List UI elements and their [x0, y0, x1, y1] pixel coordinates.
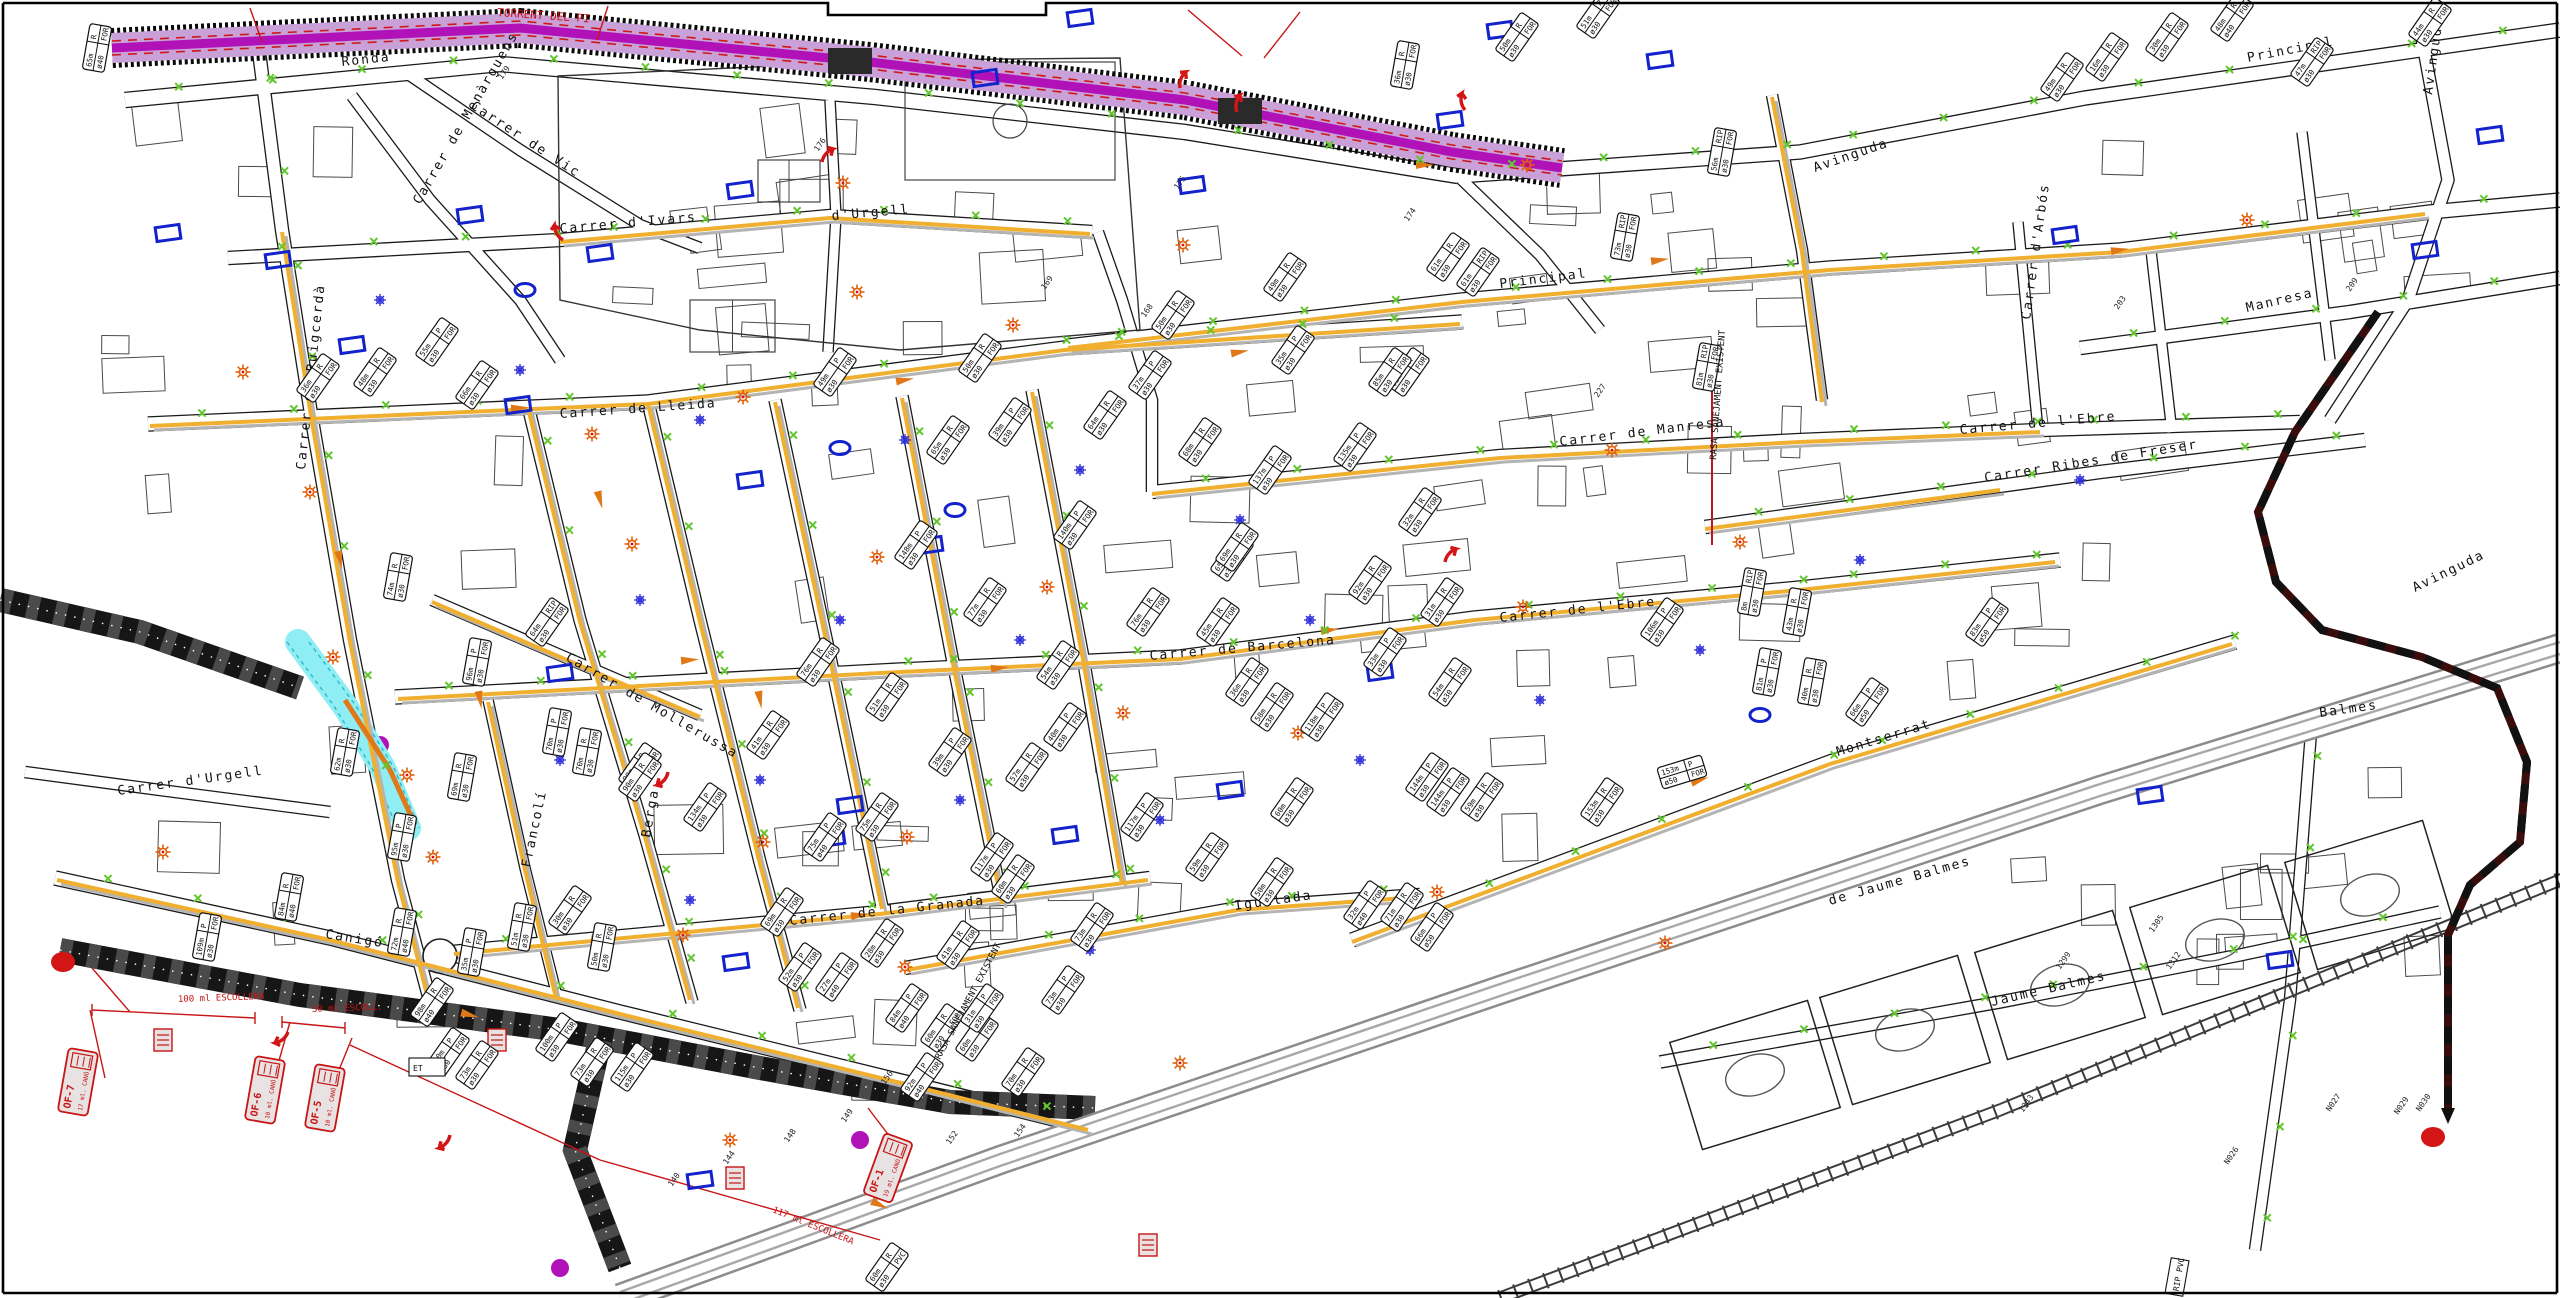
valve-ray — [1440, 887, 1442, 889]
valve-center — [856, 291, 859, 294]
valve-ray — [880, 552, 882, 554]
valve-ray — [1293, 736, 1295, 738]
pipe-segment-label: 50mRø30FOR — [587, 922, 617, 971]
point-id-label: 174 — [1402, 206, 1418, 223]
pipe-segment-label: 41mRø30FOR — [746, 710, 790, 760]
street-name-label: Francolí — [519, 789, 550, 869]
building-outline — [2222, 864, 2262, 909]
pipe-flow-arrow-icon — [1651, 255, 1670, 265]
street-surface[interactable] — [1458, 30, 2560, 176]
street-name-label: Carrer de Barcelona — [1149, 633, 1336, 664]
node-asterisk — [754, 774, 766, 786]
pipe-segment-label: 39mPø30FOR — [988, 397, 1032, 447]
point-id-label: 149 — [839, 1107, 855, 1124]
pool — [1052, 826, 1078, 843]
valve-ray — [746, 400, 748, 402]
pipe-flow-arrow-icon — [594, 490, 606, 509]
street-surface[interactable] — [2255, 720, 2312, 1250]
valve-center — [1122, 712, 1125, 715]
pipe-segment-label: 81mPø30FOR — [1752, 647, 1782, 696]
of-annotation-box: OF-610 ml. CANÓ — [245, 1056, 286, 1124]
dimension-label: 100 ml ESCOLLERA — [178, 992, 266, 1005]
gas-pipe-new — [1032, 392, 1122, 884]
park-cell — [1670, 1000, 1840, 1149]
valve-ray — [1008, 328, 1010, 330]
valve-center — [906, 836, 909, 839]
valve-ray — [852, 295, 854, 297]
valve-ray — [1042, 582, 1044, 584]
red-dot-marker — [51, 952, 75, 972]
building-outline — [1256, 552, 1299, 587]
valve-ray — [910, 832, 912, 834]
valve-ray — [305, 495, 307, 497]
valve-ray — [436, 852, 438, 854]
pipe-segment-label: 8mRIPø30FOR — [1737, 567, 1767, 616]
valve-ray — [1126, 708, 1128, 710]
valve-ray — [166, 855, 168, 857]
pipe-segment-label: 30mRø30FOR — [548, 885, 592, 935]
valve-ray — [900, 962, 902, 964]
pipe-flow-arrow-icon — [681, 655, 700, 665]
pipe-segment-label: 77mRø30FOR — [963, 577, 1007, 627]
valve-ray — [880, 560, 882, 562]
valve-icon — [736, 390, 751, 405]
pipe-segment-label: 32mRø30FOR — [1398, 487, 1442, 537]
labels-layer: RondaCarrer de PuigcerdàCarrer de Menàrg… — [58, 0, 2488, 1296]
pipeline-arrowhead — [2441, 1108, 2455, 1124]
map-sheet: RondaCarrer de PuigcerdàCarrer de Menàrg… — [0, 0, 2560, 1298]
pool — [1750, 709, 1770, 722]
junction-node-icon — [694, 414, 706, 426]
valve-ray — [1042, 590, 1044, 592]
point-id-label: 168 — [1139, 302, 1155, 319]
building-outline — [978, 496, 1015, 547]
node-asterisk — [954, 794, 966, 806]
pipe-segment-label: 66mPø50FOR — [1845, 677, 1889, 727]
valve-ray — [852, 287, 854, 289]
valve-center — [1297, 732, 1300, 735]
point-id-label: 140 — [666, 1171, 682, 1188]
valve-center — [242, 371, 245, 374]
pool — [2137, 786, 2163, 803]
special-label-text: ET — [413, 1064, 423, 1073]
point-id-label: 175 — [1172, 174, 1188, 191]
torrent-culvert — [828, 48, 872, 74]
pipe-segment-label: 40mRø30FOR — [1797, 657, 1827, 706]
junction-node-icon — [1074, 464, 1086, 476]
pool — [2477, 126, 2503, 143]
building-outline — [1583, 466, 1606, 497]
junction-node-icon — [1854, 554, 1866, 566]
works-band — [0, 600, 300, 688]
valve-ray — [860, 295, 862, 297]
valve-ray — [872, 552, 874, 554]
valve-ray — [872, 560, 874, 562]
building-outline — [1781, 406, 1802, 458]
red-flow-arrow-icon — [1455, 93, 1468, 110]
junction-node-icon — [1694, 644, 1706, 656]
dimension-line — [282, 1022, 345, 1028]
valve-ray — [328, 660, 330, 662]
pipe-segment-label: 70mRø30FOR — [572, 727, 602, 776]
pipe-segment-label: 68mRø30FOR — [1178, 417, 1222, 467]
building-outline — [1525, 383, 1593, 419]
pipe-segment-label: 118mPø30FOR — [1300, 692, 1344, 742]
utility-map-canvas: RondaCarrer de PuigcerdàCarrer de Menàrg… — [0, 0, 2560, 1298]
valve-ray — [238, 375, 240, 377]
valve-center — [1046, 586, 1049, 589]
pool — [945, 504, 965, 517]
node-asterisk — [1694, 644, 1706, 656]
valve-center — [2246, 219, 2249, 222]
node-asterisk — [634, 594, 646, 606]
valve-center — [406, 774, 409, 777]
valve-center — [762, 841, 765, 844]
valve-center — [729, 1139, 732, 1142]
valve-icon — [1176, 238, 1191, 253]
valve-ray — [1118, 716, 1120, 718]
valve-ray — [1175, 1066, 1177, 1068]
park-pond — [2335, 867, 2404, 923]
pipe-segment-label: 96mPø30FOR — [462, 637, 492, 686]
building-outline — [1247, 380, 1296, 416]
pipe-segment-label: 51mRø30FOR — [1576, 0, 1620, 39]
building-outline — [1947, 659, 1976, 699]
pipe-segment-label: 83mPø50FOR — [1965, 597, 2009, 647]
point-id-label: 227 — [1592, 382, 1608, 399]
valve-icon — [1430, 885, 1445, 900]
valve-center — [309, 491, 312, 494]
pipe-segment-label: 16mRø30FOR — [2085, 32, 2129, 82]
valve-icon — [900, 830, 915, 845]
valve-ray — [428, 860, 430, 862]
special-label: RIP PVC — [2165, 1256, 2189, 1296]
pipe-segment-label: 51mRø30FOR — [865, 672, 909, 722]
grate-icon — [1139, 1234, 1157, 1256]
valve-center — [842, 182, 845, 185]
valve-center — [631, 543, 634, 546]
valve-ray — [1126, 716, 1128, 718]
valve-center — [162, 851, 165, 854]
valve-ray — [1016, 320, 1018, 322]
pipe-segment-label: 60mRø30FOR — [1270, 777, 1314, 827]
point-id-label: 203 — [2112, 294, 2128, 311]
valve-center — [1436, 891, 1439, 894]
pipe-segment-label: 137mPø30FOR — [1248, 445, 1292, 495]
pipe-segment-label: 73mRIPø30FOR — [1610, 212, 1640, 261]
valve-ray — [1301, 736, 1303, 738]
point-id-label: 209 — [2344, 276, 2360, 293]
valve-center — [332, 656, 335, 659]
valve-icon — [756, 835, 771, 850]
valve-center — [1182, 244, 1185, 247]
pipe-flow-arrow-icon — [1230, 346, 1249, 357]
building-outline — [102, 335, 129, 353]
junction-node-icon — [374, 294, 386, 306]
valve-ray — [1735, 537, 1737, 539]
valve-icon — [723, 1133, 738, 1148]
valve-ray — [1178, 248, 1180, 250]
pool — [1067, 9, 1093, 26]
junction-node-icon — [834, 614, 846, 626]
pipe-segment-label: 57mRø30FOR — [1005, 742, 1049, 792]
building-outline — [716, 304, 770, 355]
valve-icon — [1173, 1056, 1188, 1071]
valve-ray — [246, 375, 248, 377]
point-id-label: N026 — [2222, 1145, 2241, 1166]
valve-ray — [1735, 545, 1737, 547]
of-annotation-box: OF-717 ml. CANÓ — [58, 1048, 99, 1116]
building-outline — [1403, 539, 1471, 577]
building-outline — [796, 1016, 855, 1044]
valve-ray — [246, 367, 248, 369]
valve-ray — [766, 837, 768, 839]
of-annotation-box: OF-510 ml. CANÓ — [305, 1064, 346, 1132]
pipe-segment-label: 84mRø40FOR — [274, 872, 304, 921]
building-outline — [2352, 240, 2377, 274]
pipe-segment-label: 55mPø30FOR — [415, 317, 459, 367]
valve-icon — [625, 537, 640, 552]
valve-ray — [1440, 895, 1442, 897]
street-name-label: Carrer de Vic — [468, 99, 583, 181]
building-outline — [1778, 463, 1844, 507]
valve-ray — [635, 547, 637, 549]
valve-ray — [595, 429, 597, 431]
pipe-segment-label: 45mRø30FOR — [1196, 597, 1240, 647]
valve-icon — [1040, 580, 1055, 595]
valve-icon — [236, 365, 251, 380]
works-magenta-node — [851, 1131, 869, 1149]
node-asterisk — [514, 364, 526, 376]
pipe-segment-label: 69mRø30FOR — [447, 752, 477, 801]
grate-icon — [154, 1029, 172, 1051]
pipe-segment-label: 49mRø30FOR — [1263, 252, 1307, 302]
node-asterisk — [1304, 614, 1316, 626]
valve-ray — [725, 1143, 727, 1145]
red-leader-line — [1264, 12, 1300, 58]
valve-ray — [166, 847, 168, 849]
valve-center — [682, 934, 685, 937]
valve-icon — [426, 850, 441, 865]
building-outline — [1497, 309, 1525, 327]
junction-node-icon — [1534, 694, 1546, 706]
point-id-label: 152 — [944, 1129, 960, 1146]
building-outline — [1617, 556, 1688, 589]
pipe-segment-label: 153mRø30FOR — [1580, 777, 1624, 827]
valve-ray — [910, 840, 912, 842]
point-id-label: 176 — [812, 136, 828, 153]
valve-center — [1012, 324, 1015, 327]
valve-ray — [1183, 1066, 1185, 1068]
building-outline — [102, 356, 165, 393]
valve-ray — [1050, 582, 1052, 584]
pipe-segment-label: 64mRø30FOR — [1083, 390, 1127, 440]
pool — [723, 953, 749, 970]
pipe-flow-arrow-icon — [754, 690, 765, 709]
pipe-segment-label: 65mRø40FOR — [82, 23, 112, 72]
street-surface[interactable] — [2302, 132, 2330, 360]
pool — [727, 181, 753, 198]
pool — [830, 442, 850, 455]
building-outline — [1490, 736, 1546, 767]
valve-ray — [1175, 1058, 1177, 1060]
pipe-segment-label: 92mRø30FOR — [1348, 555, 1392, 605]
valve-ray — [2242, 215, 2244, 217]
valve-ray — [2250, 223, 2252, 225]
valve-icon — [676, 928, 691, 943]
node-asterisk — [1074, 464, 1086, 476]
grate-icon — [726, 1167, 744, 1189]
valve-ray — [436, 860, 438, 862]
pipe-segment-label: 48mRø30FOR — [353, 347, 397, 397]
valve-ray — [1118, 708, 1120, 710]
pipe-segment-label: 59mRø30FOR — [1185, 832, 1229, 882]
pool — [737, 471, 763, 488]
valve-icon — [585, 427, 600, 442]
valve-icon — [836, 176, 851, 191]
node-asterisk — [834, 614, 846, 626]
junction-node-icon — [634, 594, 646, 606]
building-outline — [1608, 656, 1636, 688]
park-cell — [2285, 820, 2455, 969]
valve-ray — [587, 437, 589, 439]
node-asterisk — [374, 294, 386, 306]
valve-ray — [587, 429, 589, 431]
pipe-segment-label: 84mPø40FOR — [885, 983, 929, 1033]
valve-icon — [1006, 318, 1021, 333]
pipe-segment-label: 65mRø30FOR — [926, 415, 970, 465]
valve-ray — [428, 852, 430, 854]
street-casing — [258, 44, 432, 1008]
valve-icon — [1733, 535, 1748, 550]
valve-icon — [1605, 443, 1620, 458]
pipe-segment-label: 56mRIPø30FOR — [1707, 127, 1737, 176]
valve-ray — [410, 778, 412, 780]
junction-node-icon — [514, 364, 526, 376]
junction-node-icon — [1014, 634, 1026, 646]
pipe-segment-label: 60mRø30PVC — [865, 1242, 909, 1292]
valve-ray — [328, 652, 330, 654]
gas-pipe-new — [902, 398, 1002, 904]
valve-ray — [313, 487, 315, 489]
building-outline — [313, 127, 353, 178]
red-flow-arrow-icon — [1440, 545, 1459, 562]
point-id-label: N029 — [2392, 1095, 2411, 1116]
dimension-line — [92, 1010, 255, 1018]
valve-ray — [1293, 728, 1295, 730]
building-outline — [145, 474, 171, 514]
pool — [547, 664, 573, 681]
building-outline — [1668, 229, 1717, 273]
valve-ray — [733, 1143, 735, 1145]
pipe-segment-label: 153mPø50FOR — [1657, 755, 1707, 789]
pipe-segment-label: 75mPø40FOR — [803, 812, 847, 862]
valve-center — [591, 433, 594, 436]
red-flow-arrow-icon — [654, 772, 673, 789]
node-asterisk — [1014, 634, 1026, 646]
building-outline — [760, 103, 805, 157]
valve-icon — [400, 768, 415, 783]
valve-ray — [1008, 320, 1010, 322]
red-flow-arrow-icon — [273, 1032, 291, 1047]
valve-ray — [1432, 895, 1434, 897]
building-outline — [2081, 885, 2115, 926]
pool — [2052, 226, 2078, 243]
valve-ray — [1016, 328, 1018, 330]
pool — [155, 224, 181, 241]
pool — [1647, 51, 1673, 68]
node-asterisk — [1534, 694, 1546, 706]
valve-ray — [1183, 1058, 1185, 1060]
valve-ray — [686, 938, 688, 940]
valve-ray — [402, 778, 404, 780]
point-id-label: 148 — [782, 1127, 798, 1144]
valve-center — [432, 856, 435, 859]
pipe-segment-label: 74mRø30FOR — [383, 552, 413, 601]
street-name-label: Berga — [639, 788, 662, 839]
street-surface[interactable] — [258, 44, 432, 1008]
valve-center — [1179, 1062, 1182, 1065]
red-leader-line — [1188, 10, 1242, 56]
pipe-segment-label: 58mRø30FOR — [1250, 682, 1294, 732]
node-asterisk — [1354, 754, 1366, 766]
building-outline — [1434, 480, 1486, 511]
valve-ray — [902, 832, 904, 834]
valve-center — [1739, 541, 1742, 544]
building-outline — [2368, 767, 2402, 798]
pipe-segment-label: 48mRø40FOR — [2210, 0, 2254, 42]
pipe-segment-label: 28mRø30FOR — [860, 918, 904, 968]
junction-node-icon — [954, 794, 966, 806]
valve-ray — [1432, 887, 1434, 889]
valve-ray — [402, 770, 404, 772]
pool — [339, 336, 365, 353]
pipe-segment-label: 134mPø30FOR — [683, 782, 727, 832]
street-name-label: Avinguda — [2410, 548, 2487, 596]
valve-ray — [1518, 602, 1520, 604]
pool — [457, 206, 483, 223]
building-outline — [2082, 543, 2110, 581]
valve-ray — [2242, 223, 2244, 225]
building-outline — [1538, 466, 1566, 506]
valve-ray — [336, 660, 338, 662]
valve-center — [904, 966, 907, 969]
valve-ray — [733, 1135, 735, 1137]
valve-center — [876, 556, 879, 559]
valve-ray — [1186, 248, 1188, 250]
building-outline — [1517, 650, 1550, 687]
valve-ray — [1743, 537, 1745, 539]
valve-ray — [635, 539, 637, 541]
junction-node-icon — [1304, 614, 1316, 626]
junction-node-icon — [1354, 754, 1366, 766]
pipe-segment-label: 109mPø30FOR — [192, 912, 222, 961]
pipe-segment-label: 76mRø30FOR — [1126, 587, 1170, 637]
red-flow-arrow-icon — [436, 1135, 455, 1152]
valve-icon — [156, 845, 171, 860]
valve-icon — [326, 650, 341, 665]
building-outline — [1530, 205, 1577, 226]
junction-node-icon — [684, 894, 696, 906]
valve-ray — [305, 487, 307, 489]
valve-icon — [898, 960, 913, 975]
building-outline — [2015, 629, 2070, 646]
building-outline — [1756, 298, 1808, 327]
valve-ray — [2250, 215, 2252, 217]
point-id-label: 1299 — [2054, 950, 2073, 971]
building-outline — [132, 102, 183, 147]
valve-icon — [850, 285, 865, 300]
